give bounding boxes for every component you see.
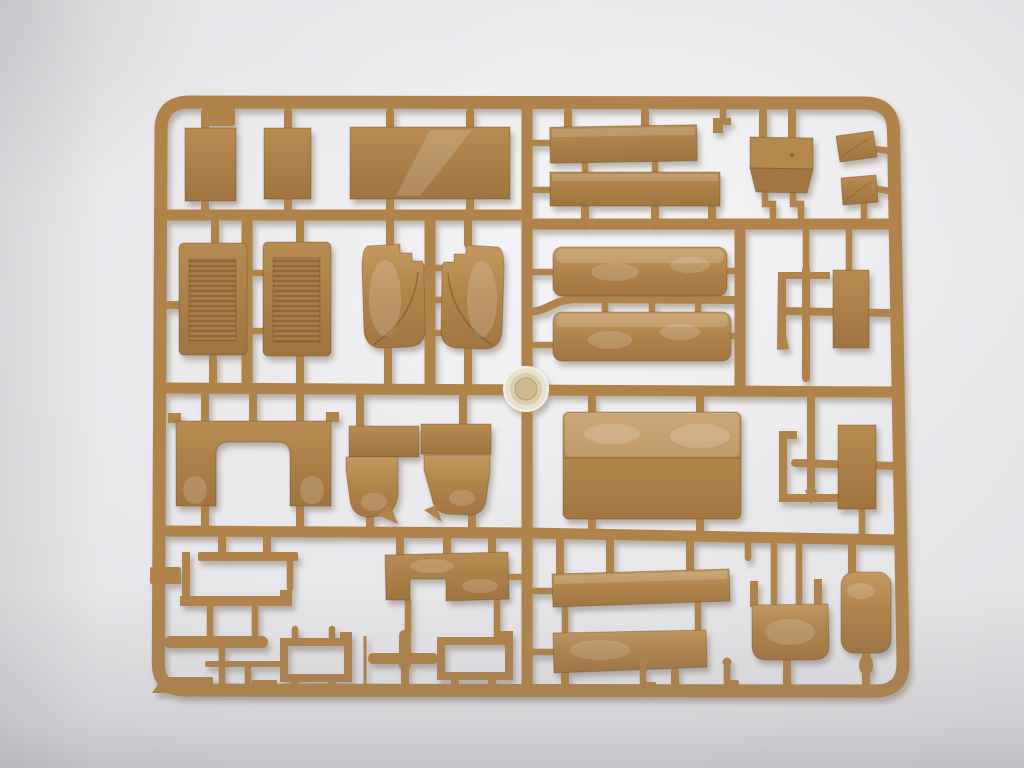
photo-background: Tan injection-molded plastic model kit s…	[0, 0, 1024, 768]
part-rounded-door	[841, 572, 891, 675]
part-bucket-seat	[750, 579, 829, 660]
injection-hub	[504, 367, 548, 411]
part-fender-pair	[346, 424, 491, 524]
part-notched-plate	[385, 552, 509, 601]
sprue-photo	[0, 0, 1024, 768]
part-side-panel-2	[553, 630, 707, 673]
sprue	[150, 102, 903, 693]
part-small-panel-1	[185, 128, 236, 201]
part-fender-shell-right	[441, 245, 504, 349]
part-window-frame-2	[437, 631, 513, 680]
part-side-panel-1	[552, 569, 730, 607]
part-louvered-panel-left	[179, 243, 247, 355]
part-tiny-bracket	[713, 118, 731, 133]
part-wide-panel	[350, 127, 510, 199]
part-angled-plate-1	[836, 131, 877, 162]
part-bed-side-2	[553, 312, 731, 361]
part-long-strip-1	[550, 125, 698, 164]
part-cab-rear-panel	[168, 412, 339, 506]
part-louvered-panel-right	[263, 242, 331, 356]
part-hull-panel	[563, 412, 741, 519]
part-bed-side-1	[553, 247, 727, 296]
part-equipment-box	[750, 137, 813, 193]
part-pin-2	[723, 658, 740, 689]
part-fender-shell-left	[362, 244, 425, 348]
part-angled-plate-2	[841, 175, 878, 205]
part-window-frame-1	[280, 632, 352, 682]
part-small-panel-2	[264, 128, 311, 199]
part-long-strip-2	[550, 172, 720, 206]
